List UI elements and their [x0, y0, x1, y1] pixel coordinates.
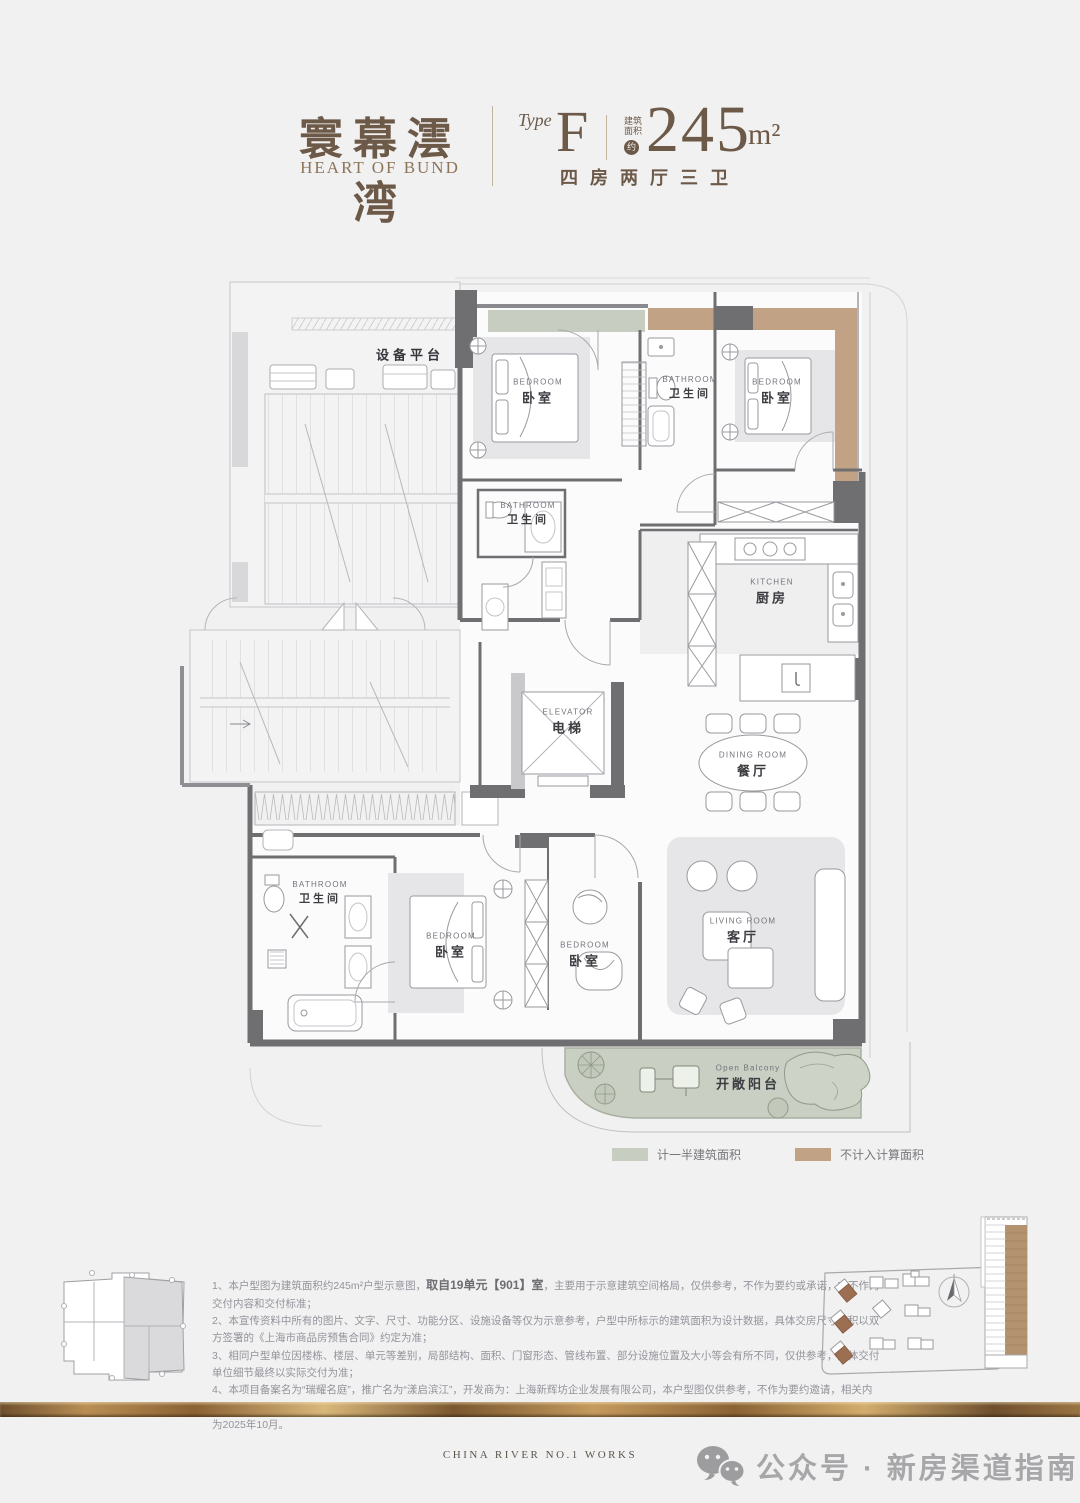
area-unit: m² [748, 118, 780, 152]
label-equipment-platform: 设备平台 [376, 345, 444, 364]
legend: 计一半建筑面积 不计入计算面积 [612, 1146, 966, 1163]
legend-label: 计一半建筑面积 [657, 1146, 741, 1163]
poster-page: 寰幕澐湾 HEART OF BUND Type F 建筑 面积 约 245 m²… [0, 0, 1080, 1503]
brand-title-en: HEART OF BUND [290, 158, 470, 178]
floor-plan-drawing [170, 262, 930, 1142]
legend-half-area: 计一半建筑面积 [612, 1146, 741, 1163]
north-arrow-icon [939, 1274, 969, 1307]
header-divider-2 [606, 115, 607, 160]
approx-badge: 约 [624, 140, 639, 155]
note-line-3: 3、相同户型单位因楼栋、楼层、单元等差别，局部结构、面积、门窗形态、管线布置、部… [212, 1348, 882, 1383]
floor-plan: 设备平台 BEDROOM卧室 BATHROOM卫生间 BEDROOM卧室 BAT… [170, 262, 930, 1142]
area-number: 245 [646, 92, 751, 168]
legend-swatch-green [612, 1148, 648, 1161]
area-note: 建筑 面积 [622, 116, 644, 136]
wechat-text: 公众号 · 新房渠道指南 [756, 1445, 1079, 1487]
legend-label: 不计入计算面积 [840, 1146, 924, 1163]
wechat-badge: 公众号 · 新房渠道指南 [694, 1444, 1079, 1488]
legend-swatch-brown [795, 1148, 831, 1161]
note-line-2: 2、本宣传资料中所有的图片、文字、尺寸、功能分区、设施设备等仅为示意参考，户型中… [212, 1313, 882, 1348]
wechat-icon [694, 1444, 746, 1488]
unit-key-plan [52, 1266, 197, 1393]
building-elevation [981, 1217, 1027, 1368]
legend-excluded-area: 不计入计算面积 [795, 1146, 924, 1163]
type-label: Type [518, 110, 552, 131]
type-letter: F [556, 98, 588, 165]
header-divider [492, 106, 493, 186]
site-plan [815, 1205, 1075, 1385]
layout-spec: 四房两厅三卫 [520, 164, 780, 190]
footer-works-text: CHINA RIVER NO.1 WORKS [390, 1449, 690, 1461]
note-line-1: 1、本户型图为建筑面积约245m²户型示意图，取自19单元【901】室，主要用于… [212, 1276, 882, 1313]
highlighted-buildings [831, 1279, 857, 1364]
gold-texture-band [0, 1402, 1080, 1417]
